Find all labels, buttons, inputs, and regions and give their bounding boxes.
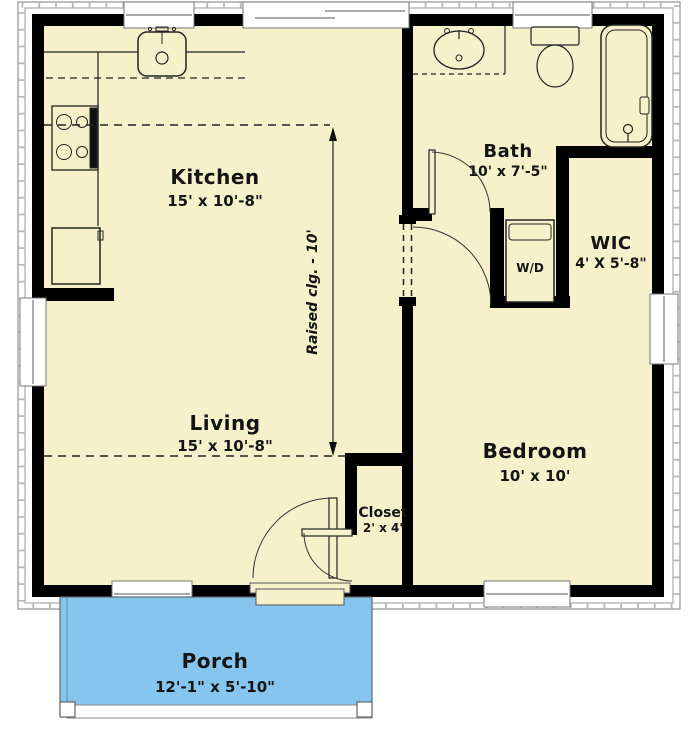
porch-post-left [60, 702, 75, 717]
kitchen-window [124, 2, 194, 28]
bathtub-icon [601, 25, 652, 147]
right-wall-window [650, 294, 678, 364]
dining-wide-window [243, 2, 409, 28]
closet-label: Closet [358, 505, 408, 521]
bedroom-label: Bedroom [483, 439, 588, 463]
wic-label: WIC [590, 233, 631, 254]
range-icon [52, 106, 98, 170]
living-label: Living [189, 411, 260, 435]
floor-plan: Raised clg. - 10' W/D [0, 0, 700, 729]
porch-label: Porch [182, 649, 249, 673]
kitchen-dims: 15' x 10'-8" [167, 192, 263, 210]
washer-dryer-label: W/D [516, 261, 544, 275]
kitchen-label: Kitchen [170, 165, 259, 189]
closet-dims: 2' x 4' [363, 521, 403, 535]
front-door-threshold [250, 583, 350, 605]
left-wall-window [20, 298, 46, 386]
washer-dryer-icon: W/D [506, 220, 554, 302]
ceiling-note: Raised clg. - 10' [305, 229, 321, 355]
kitchen-sink-icon [138, 27, 186, 76]
living-dims: 15' x 10'-8" [177, 437, 273, 455]
porch-post-right [357, 702, 372, 717]
bedroom-window [484, 581, 570, 607]
bath-label: Bath [483, 141, 532, 162]
porch-dims: 12'-1" x 5'-10" [155, 678, 275, 696]
bath-dims: 10' x 7'-5" [468, 164, 547, 180]
refrigerator-icon [52, 228, 103, 284]
bedroom-dims: 10' x 10' [499, 467, 570, 485]
floor-plan-drawing: Raised clg. - 10' W/D [0, 0, 700, 729]
bath-window [513, 2, 592, 28]
wic-dims: 4' X 5'-8" [575, 256, 646, 272]
porch-step [67, 705, 372, 718]
